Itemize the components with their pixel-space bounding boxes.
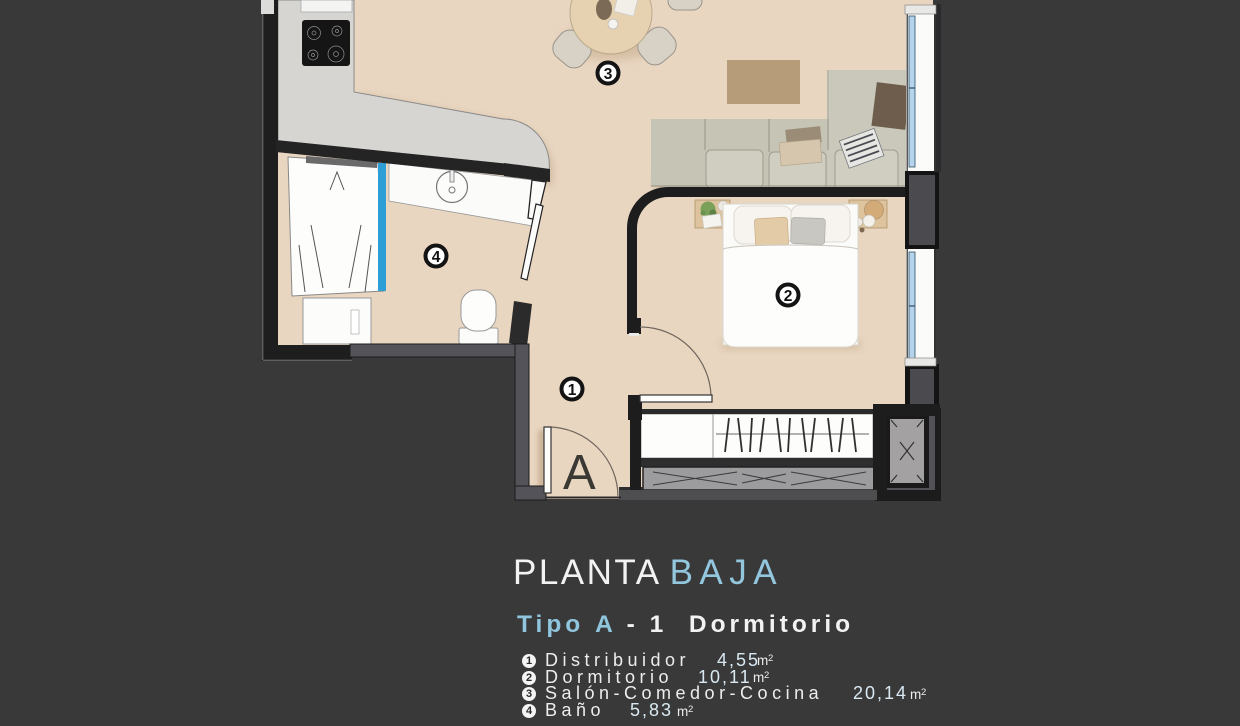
svg-text:4: 4: [432, 249, 441, 266]
svg-text:1: 1: [568, 382, 577, 399]
svg-text:2: 2: [784, 288, 793, 305]
svg-text:A: A: [563, 446, 596, 500]
svg-text:3: 3: [604, 66, 613, 83]
